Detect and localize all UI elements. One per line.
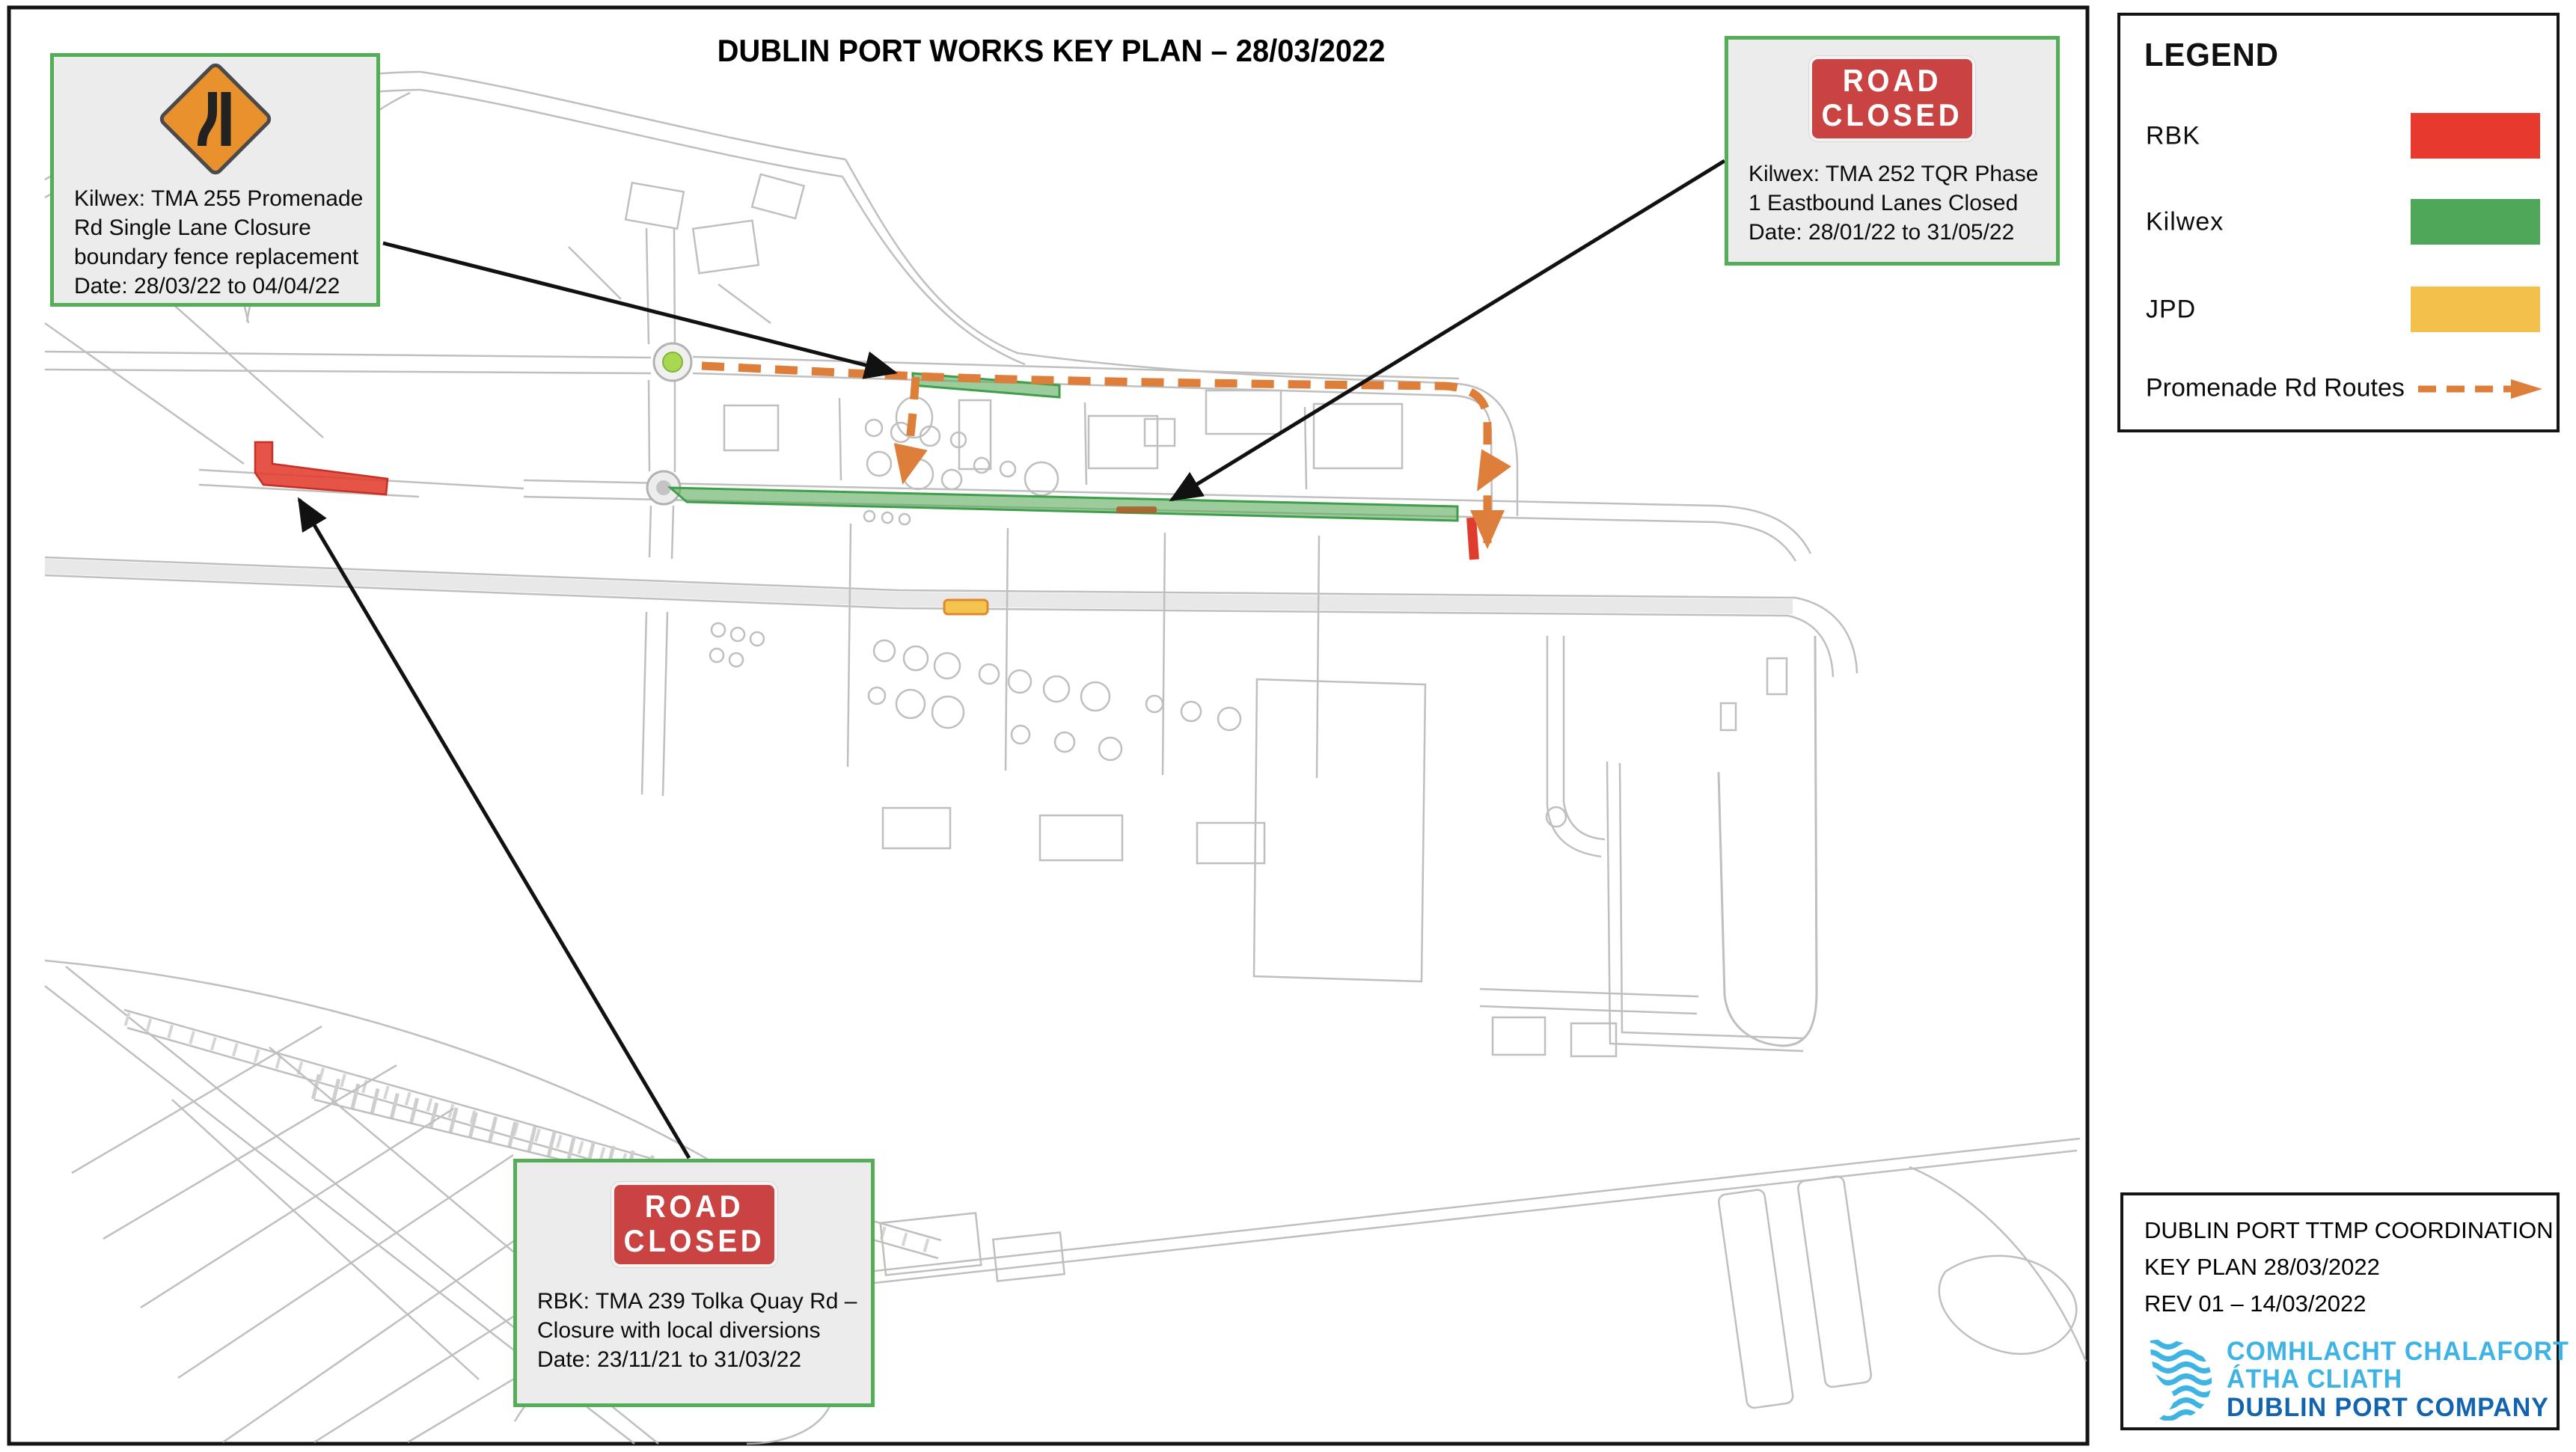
callout-text-line: Kilwex: TMA 252 TQR Phase [1749, 159, 2056, 189]
callout-text-line: Date: 28/01/22 to 31/05/22 [1749, 218, 2056, 247]
tqr-phase-mark [1116, 506, 1157, 513]
callout-tolka-quay-closure: ROAD CLOSED RBK: TMA 239 Tolka Quay Rd –… [513, 1159, 875, 1407]
legend-row-promenade-routes: Promenade Rd Routes [2120, 365, 2557, 411]
callout-tqr-eastbound-closure: ROAD CLOSED Kilwex: TMA 252 TQR Phase 1 … [1725, 36, 2060, 266]
title-block-line: KEY PLAN 28/03/2022 [2144, 1249, 2554, 1285]
callout-text-line: RBK: TMA 239 Tolka Quay Rd – [537, 1287, 871, 1316]
legend-row-jpd: JPD [2120, 287, 2557, 333]
title-block: DUBLIN PORT TTMP COORDINATION KEY PLAN 2… [2120, 1192, 2560, 1430]
callout-text-line: Date: 23/11/21 to 31/03/22 [537, 1345, 871, 1374]
road-closed-sign: ROAD CLOSED [1809, 56, 1975, 141]
road-closed-sign-text: CLOSED [1819, 98, 1966, 132]
rbk-color-swatch [2411, 113, 2540, 159]
dublin-port-company-logo: COMHLACHT CHALAFORT ÁTHA CLIATH DUBLIN P… [2144, 1336, 2576, 1423]
legend-label: RBK [2146, 122, 2200, 151]
logo-text-irish-2: ÁTHA CLIATH [2227, 1365, 2569, 1393]
logo-text-irish-1: COMHLACHT CHALAFORT [2227, 1338, 2569, 1365]
green-roundabout [663, 352, 682, 372]
kilwex-color-swatch [2411, 199, 2540, 245]
logo-text-english: DUBLIN PORT COMPANY [2227, 1393, 2569, 1422]
port-waves-icon [2144, 1336, 2216, 1423]
callout-promenade-lane-closure: Kilwex: TMA 255 Promenade Rd Single Lane… [50, 53, 380, 307]
legend-label: JPD [2146, 295, 2196, 325]
callout-text-line: Rd Single Lane Closure [74, 213, 376, 242]
callout-text-line: Closure with local diversions [537, 1316, 871, 1345]
road-closed-sign-text: CLOSED [620, 1224, 768, 1258]
legend-row-rbk: RBK [2120, 113, 2557, 159]
dashed-route-arrow-icon [2417, 377, 2545, 401]
road-closed-sign-text: ROAD [1819, 64, 1966, 98]
legend-heading: LEGEND [2144, 37, 2279, 74]
road-closed-sign-text: ROAD [620, 1189, 768, 1224]
legend-label: Kilwex [2146, 208, 2224, 237]
callout-text-line: Kilwex: TMA 255 Promenade [74, 184, 376, 213]
title-block-line: REV 01 – 14/03/2022 [2144, 1285, 2554, 1322]
legend-panel: LEGEND RBK Kilwex JPD Promenade Rd Route… [2117, 13, 2560, 432]
legend-row-kilwex: Kilwex [2120, 199, 2557, 245]
dublin-port-key-plan: DUBLIN PORT WORKS KEY PLAN – 28/03/2022 … [0, 0, 2576, 1452]
jpd-color-swatch [2411, 287, 2540, 332]
callout-text-line: Date: 28/03/22 to 04/04/22 [74, 272, 376, 301]
road-narrows-sign-icon [152, 60, 279, 178]
jpd-works-segment [944, 600, 988, 614]
legend-label: Promenade Rd Routes [2146, 374, 2405, 403]
road-closed-sign: ROAD CLOSED [611, 1182, 777, 1267]
title-block-line: DUBLIN PORT TTMP COORDINATION [2144, 1212, 2554, 1249]
callout-text-line: boundary fence replacement [74, 242, 376, 272]
callout-text-line: 1 Eastbound Lanes Closed [1749, 189, 2056, 218]
